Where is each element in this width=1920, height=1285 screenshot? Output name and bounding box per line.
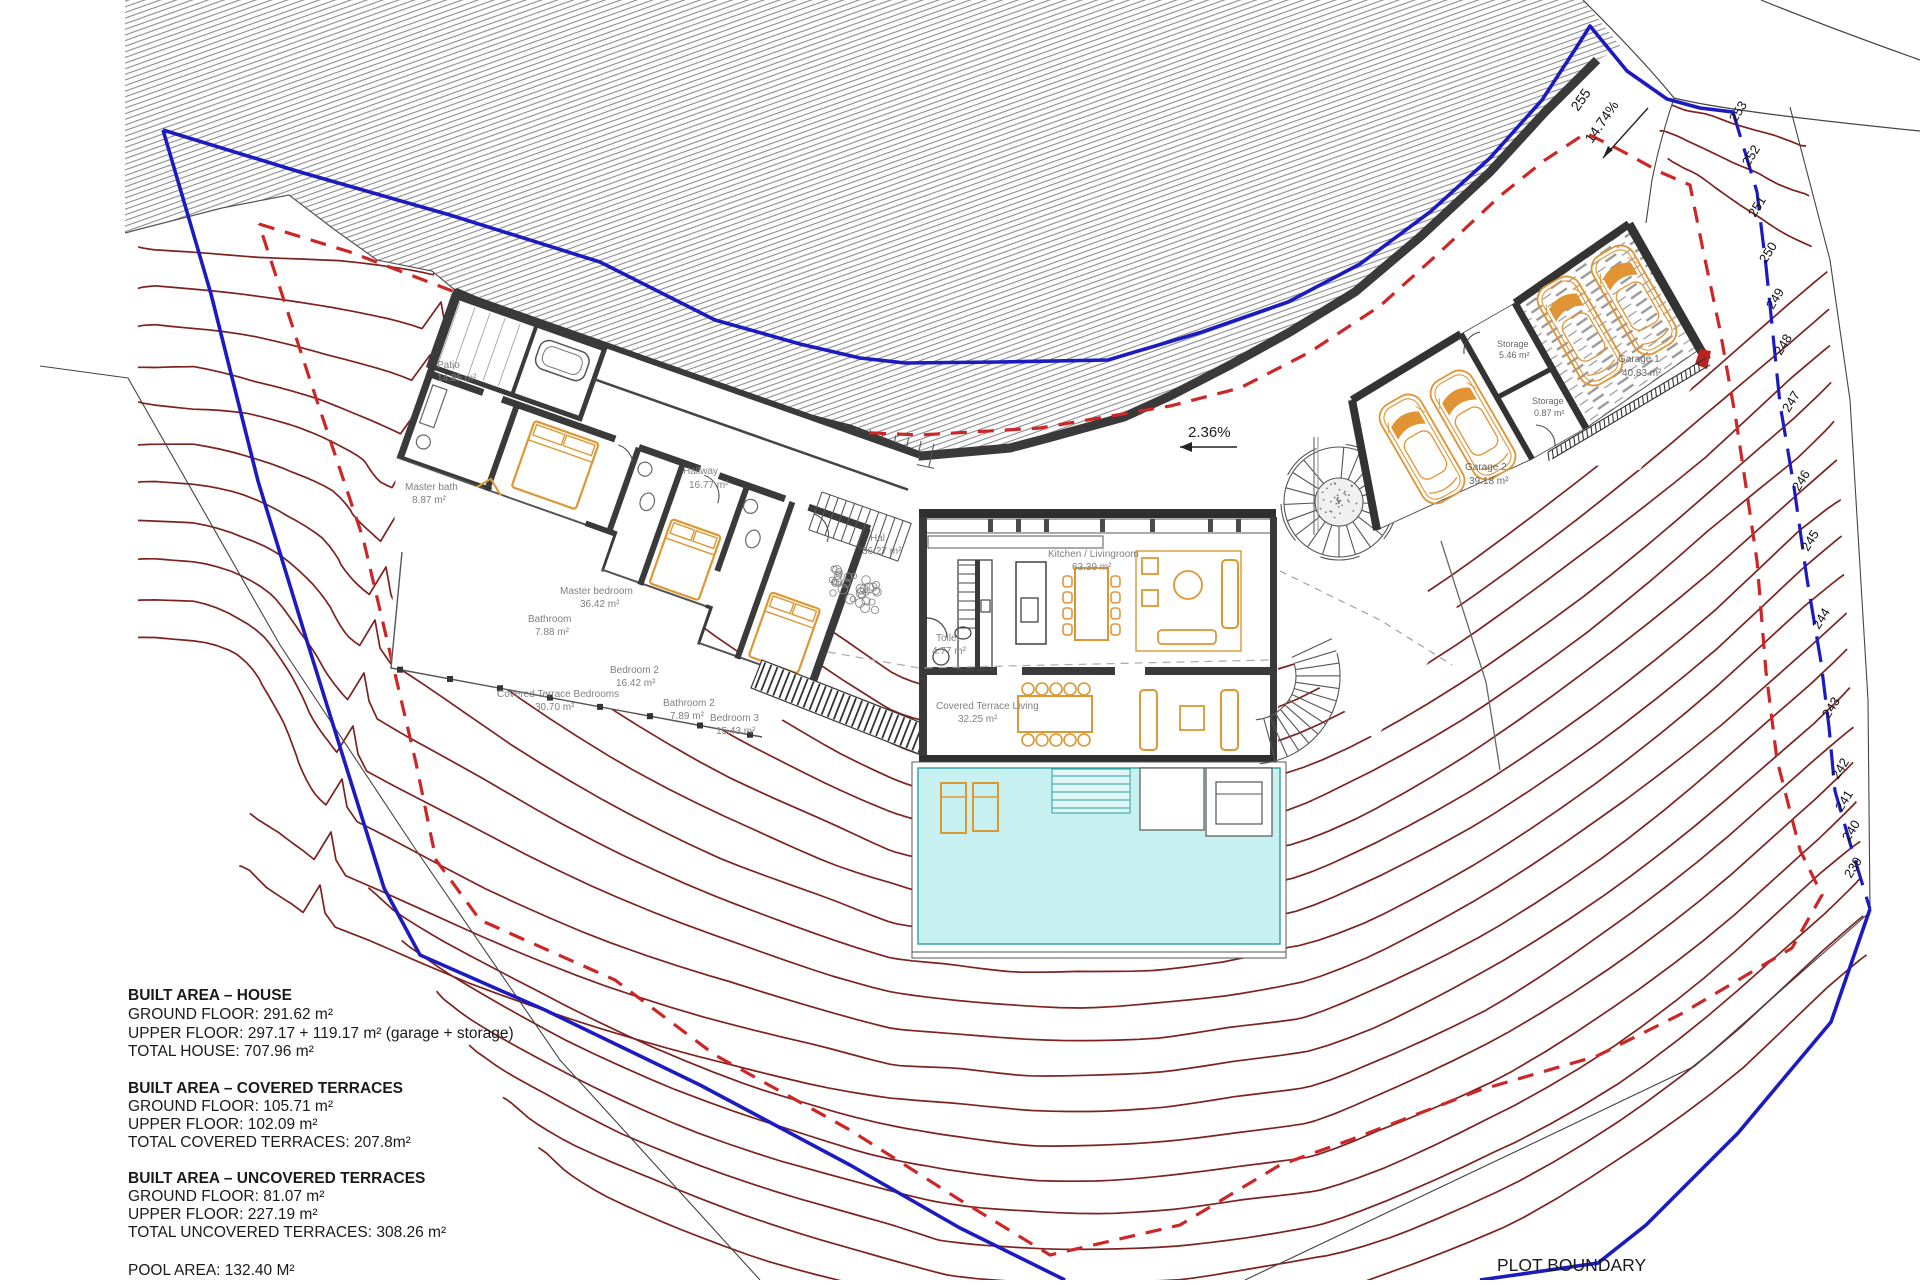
svg-text:8.87 m²: 8.87 m²	[412, 495, 447, 506]
svg-text:40.83 m²: 40.83 m²	[1622, 368, 1662, 379]
svg-text:14.85 m²: 14.85 m²	[437, 373, 477, 384]
svg-text:16.42 m²: 16.42 m²	[616, 678, 656, 689]
svg-text:UPPER FLOOR: 102.09 m²: UPPER FLOOR: 102.09 m²	[128, 1116, 318, 1133]
svg-text:BUILT AREA – UNCOVERED TERRACE: BUILT AREA – UNCOVERED TERRACES	[128, 1170, 425, 1187]
svg-text:Master bedroom: Master bedroom	[560, 586, 633, 597]
svg-text:Kitchen / Livingroom: Kitchen / Livingroom	[1048, 549, 1139, 560]
svg-text:Storage: Storage	[1532, 396, 1564, 406]
svg-text:7.89 m²: 7.89 m²	[670, 711, 705, 722]
svg-text:Bathroom 2: Bathroom 2	[663, 698, 715, 709]
svg-text:30.70 m²: 30.70 m²	[535, 702, 575, 713]
svg-text:GROUND FLOOR: 291.62 m²: GROUND FLOOR: 291.62 m²	[128, 1006, 333, 1023]
svg-text:36.42 m²: 36.42 m²	[580, 599, 620, 610]
svg-text:Storage: Storage	[1497, 339, 1529, 349]
svg-text:PLOT BOUNDARY: PLOT BOUNDARY	[1497, 1255, 1646, 1275]
svg-text:Covered Terrace Bedrooms: Covered Terrace Bedrooms	[497, 689, 619, 700]
svg-text:63.39 m²: 63.39 m²	[1072, 562, 1112, 573]
svg-text:32.25 m²: 32.25 m²	[958, 714, 998, 725]
svg-text:16.77 m²: 16.77 m²	[689, 480, 729, 491]
svg-text:15.43 m²: 15.43 m²	[716, 726, 756, 737]
svg-text:Patio: Patio	[437, 360, 460, 371]
svg-text:7.88 m²: 7.88 m²	[535, 627, 570, 638]
svg-text:POOL AREA: 132.40 M²: POOL AREA: 132.40 M²	[128, 1262, 295, 1279]
svg-text:Hal: Hal	[870, 533, 885, 544]
svg-text:TOTAL COVERED TERRACES: 207.8m: TOTAL COVERED TERRACES: 207.8m²	[128, 1134, 411, 1151]
svg-text:Bedroom 2: Bedroom 2	[610, 665, 659, 676]
svg-text:Toilet: Toilet	[936, 633, 960, 644]
svg-text:TOTAL HOUSE: 707.96 m²: TOTAL HOUSE: 707.96 m²	[128, 1043, 314, 1060]
svg-text:36.27 m²: 36.27 m²	[862, 546, 902, 557]
svg-text:Hallway: Hallway	[683, 466, 718, 477]
svg-text:2.36%: 2.36%	[1188, 424, 1231, 441]
svg-text:UPPER FLOOR: 227.19 m²: UPPER FLOOR: 227.19 m²	[128, 1206, 318, 1223]
svg-text:BUILT AREA – COVERED TERRACES: BUILT AREA – COVERED TERRACES	[128, 1080, 403, 1097]
svg-text:GROUND FLOOR: 105.71 m²: GROUND FLOOR: 105.71 m²	[128, 1098, 333, 1115]
svg-text:GROUND FLOOR: 81.07 m²: GROUND FLOOR: 81.07 m²	[128, 1188, 324, 1205]
svg-text:39.18 m²: 39.18 m²	[1469, 476, 1509, 487]
svg-text:Bathroom: Bathroom	[528, 614, 571, 625]
svg-text:0.87 m²: 0.87 m²	[1534, 408, 1565, 418]
svg-text:Garage 2: Garage 2	[1465, 462, 1507, 473]
svg-text:4.77 m²: 4.77 m²	[932, 646, 967, 657]
svg-text:Master bath: Master bath	[405, 482, 458, 493]
svg-text:BUILT AREA – HOUSE: BUILT AREA – HOUSE	[128, 987, 292, 1004]
svg-text:5.46 m²: 5.46 m²	[1499, 350, 1530, 360]
svg-text:UPPER FLOOR: 297.17 + 119.17 m: UPPER FLOOR: 297.17 + 119.17 m² (garage …	[128, 1025, 514, 1042]
svg-text:TOTAL UNCOVERED TERRACES: 308.: TOTAL UNCOVERED TERRACES: 308.26 m²	[128, 1224, 446, 1241]
svg-text:Garage 1: Garage 1	[1618, 354, 1660, 365]
svg-text:Bedroom 3: Bedroom 3	[710, 713, 759, 724]
svg-text:Covered Terrace Living: Covered Terrace Living	[936, 701, 1039, 712]
